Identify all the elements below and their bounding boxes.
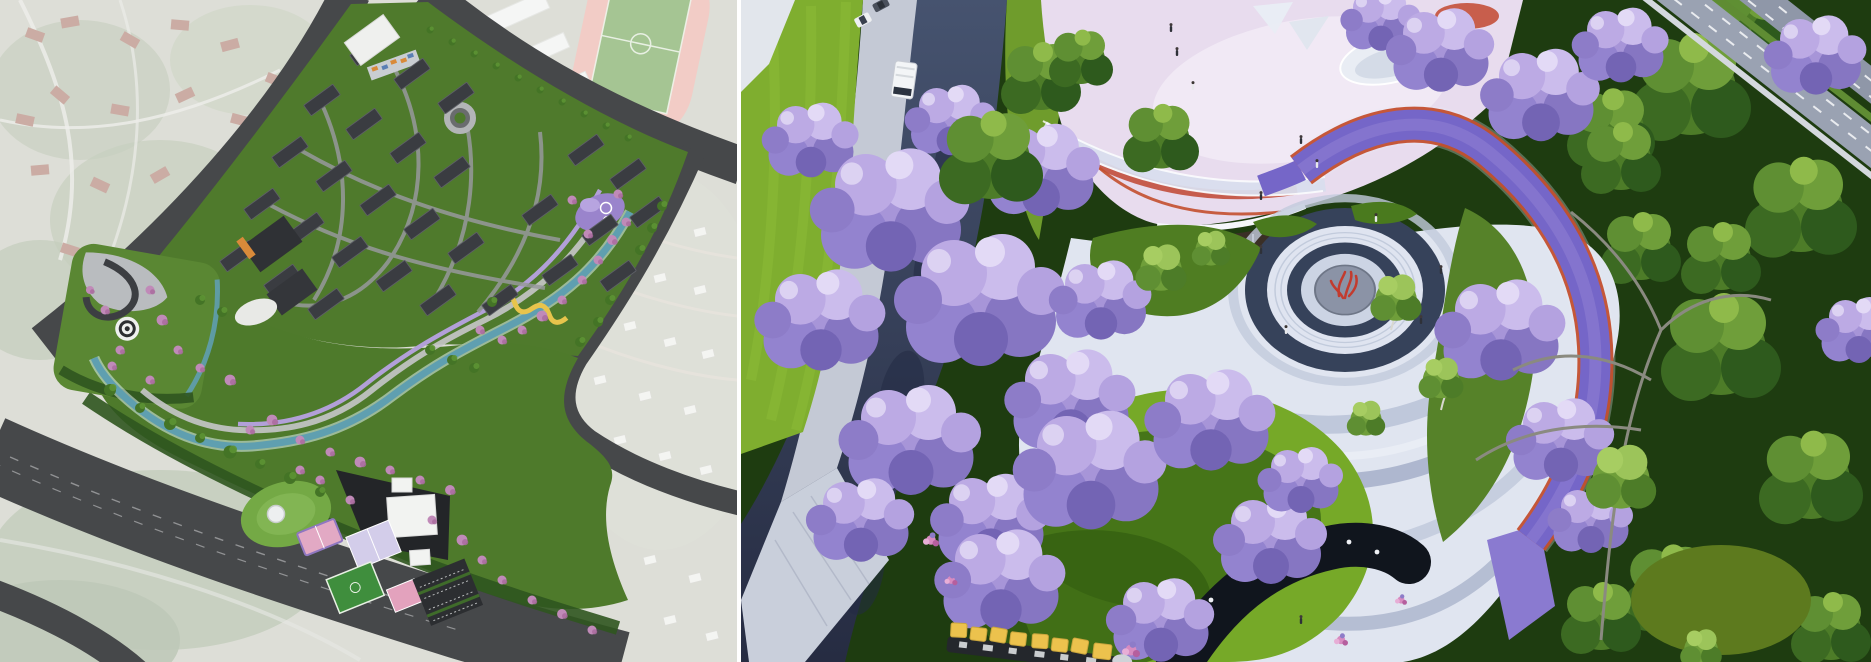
forest-clearing xyxy=(1631,545,1811,655)
masterplan-panel xyxy=(0,0,737,662)
render-panel xyxy=(741,0,1871,662)
lawn-circle-pad xyxy=(268,506,285,523)
presentation-board xyxy=(0,0,1871,662)
bus xyxy=(891,61,918,100)
masterplan-graphic xyxy=(0,0,737,662)
render-graphic xyxy=(741,0,1871,662)
pocket-park xyxy=(50,240,225,412)
